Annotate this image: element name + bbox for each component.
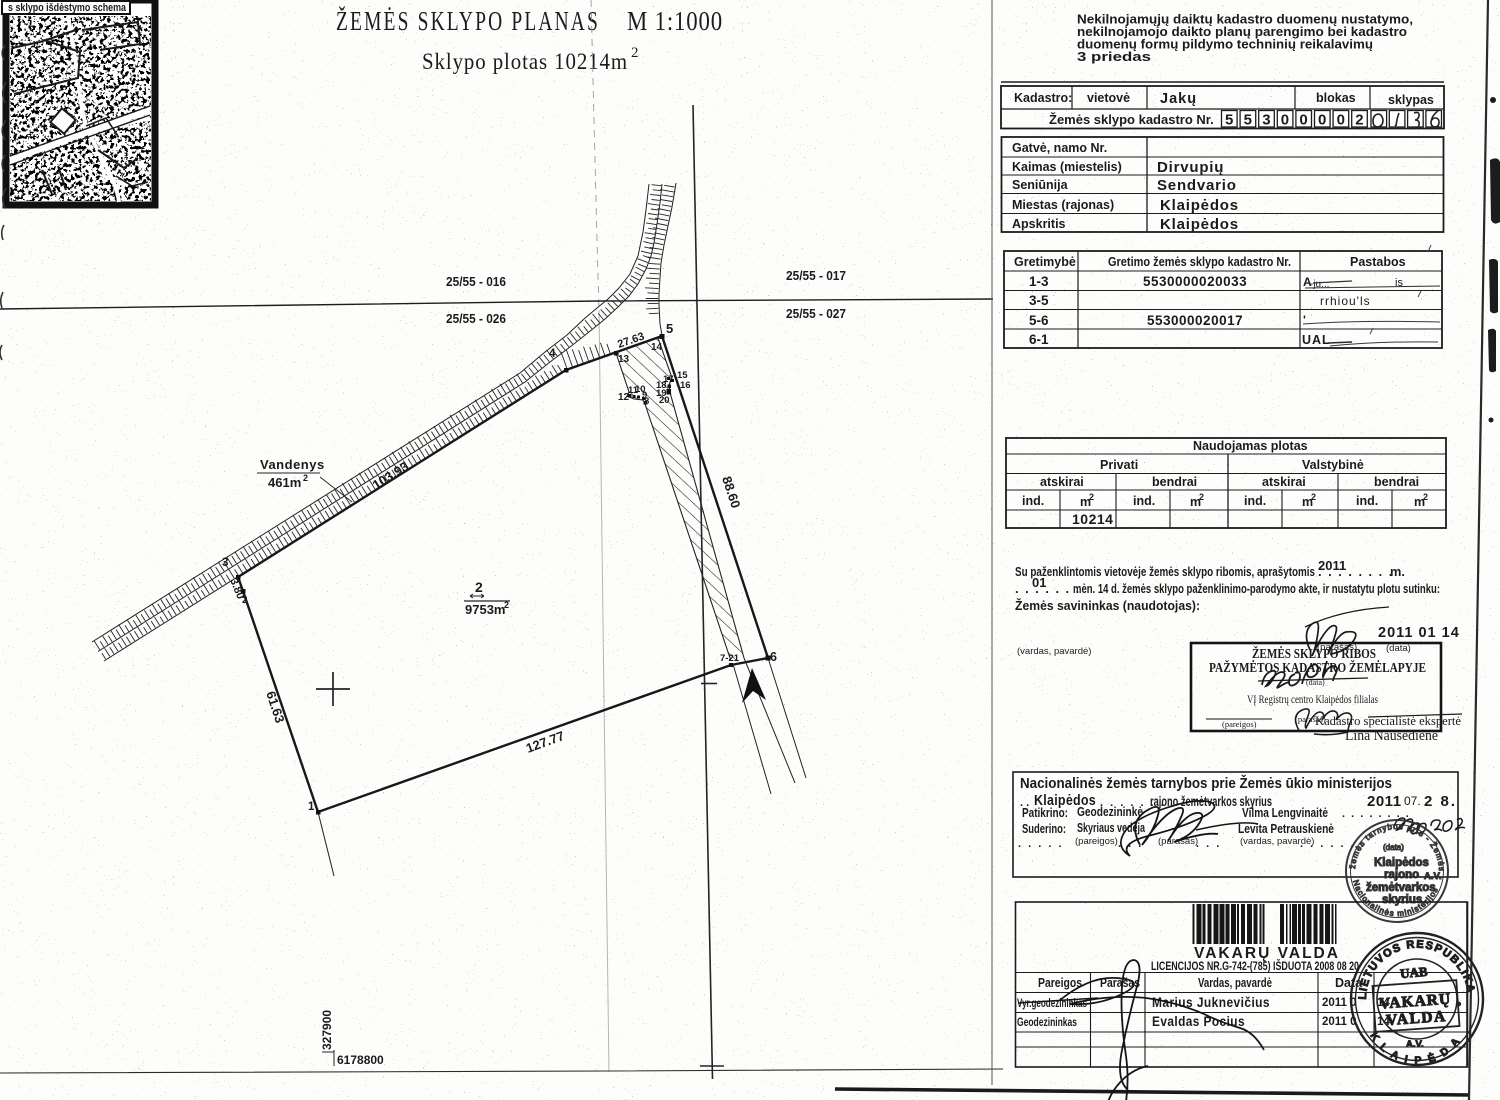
svg-text:UAB: UAB bbox=[1399, 964, 1428, 981]
svg-text:(vardas, pavardė): (vardas, pavardė) bbox=[1017, 646, 1091, 657]
svg-text:Pastabos: Pastabos bbox=[1350, 255, 1406, 269]
svg-text:1: 1 bbox=[308, 801, 315, 813]
svg-text:VĮ Registrų centro Klaipėdos f: VĮ Registrų centro Klaipėdos filialas bbox=[1247, 694, 1378, 706]
svg-text:skyrius: skyrius bbox=[1382, 894, 1422, 906]
svg-text:A.V.: A.V. bbox=[1406, 1039, 1424, 1050]
svg-text:2: 2 bbox=[504, 600, 509, 610]
svg-text:atskirai: atskirai bbox=[1262, 475, 1306, 489]
svg-text:ŽEMĖS SKLYPO RIBOS: ŽEMĖS SKLYPO RIBOS bbox=[1252, 646, 1376, 661]
svg-text:Patikrino:: Patikrino: bbox=[1022, 805, 1068, 820]
svg-text:Apskritis: Apskritis bbox=[1012, 217, 1066, 231]
svg-text:6-1: 6-1 bbox=[1029, 332, 1049, 347]
svg-text:6: 6 bbox=[770, 650, 777, 664]
svg-text:2: 2 bbox=[1423, 492, 1428, 502]
svg-text:Gatvė, namo Nr.: Gatvė, namo Nr. bbox=[1012, 141, 1107, 155]
svg-text:Privati: Privati bbox=[1100, 458, 1138, 472]
svg-text:461m: 461m bbox=[268, 475, 301, 490]
svg-text:ŽEMĖS SKLYPO PLANAS: ŽEMĖS SKLYPO PLANAS bbox=[336, 6, 600, 36]
svg-text:A.V.: A.V. bbox=[1424, 871, 1442, 882]
svg-text:(pareigos): (pareigos) bbox=[1222, 719, 1257, 729]
svg-text:Suderino:: Suderino: bbox=[1022, 821, 1066, 836]
svg-text:5: 5 bbox=[666, 321, 673, 336]
svg-text:(data): (data) bbox=[1386, 643, 1411, 654]
svg-text:Kadastro:: Kadastro: bbox=[1014, 91, 1072, 105]
svg-text:01: 01 bbox=[1032, 575, 1046, 590]
svg-text:0: 0 bbox=[1318, 112, 1326, 129]
svg-text:(pareigos): (pareigos) bbox=[1075, 836, 1118, 847]
svg-text:(vardas, pavardė): (vardas, pavardė) bbox=[1240, 836, 1314, 847]
svg-text:Geodezininkas: Geodezininkas bbox=[1017, 1017, 1077, 1029]
svg-text:2: 2 bbox=[1089, 492, 1094, 502]
svg-text:7-21: 7-21 bbox=[720, 653, 740, 664]
svg-text:Gretimybė: Gretimybė bbox=[1014, 255, 1076, 269]
svg-text:3 priedas: 3 priedas bbox=[1077, 49, 1151, 64]
svg-text:2 8.: 2 8. bbox=[1424, 793, 1457, 810]
svg-text:5: 5 bbox=[1225, 112, 1233, 129]
svg-text:LICENCIJOS NR.G-742-(785) IŠ: LICENCIJOS NR.G-742-(785) IŠDUOTA 2008 0… bbox=[1151, 960, 1359, 973]
svg-text:2: 2 bbox=[475, 579, 483, 595]
svg-text:. . . . . . .: . . . . . . . bbox=[1015, 581, 1081, 596]
svg-text:2011: 2011 bbox=[1318, 558, 1346, 573]
svg-text:': ' bbox=[1303, 313, 1306, 327]
svg-text:5-6: 5-6 bbox=[1029, 313, 1049, 328]
svg-text:25/55 - 027: 25/55 - 027 bbox=[786, 306, 846, 321]
svg-text:25/55 - 016: 25/55 - 016 bbox=[446, 274, 506, 289]
svg-text:Jakų: Jakų bbox=[1160, 91, 1197, 107]
svg-text:Klaipėdos: Klaipėdos bbox=[1160, 197, 1239, 214]
svg-text:ind.: ind. bbox=[1356, 494, 1378, 508]
svg-text:UAL: UAL bbox=[1302, 333, 1331, 347]
svg-text:553000020017: 553000020017 bbox=[1147, 313, 1243, 328]
svg-text:6178800: 6178800 bbox=[337, 1053, 384, 1067]
svg-text:Seniūnija: Seniūnija bbox=[1012, 178, 1069, 192]
svg-text:0: 0 bbox=[1337, 112, 1345, 129]
svg-text:13: 13 bbox=[618, 354, 630, 365]
svg-text:m.: m. bbox=[1390, 564, 1405, 579]
svg-text:Naudojamas plotas: Naudojamas plotas bbox=[1193, 439, 1308, 453]
svg-text:20: 20 bbox=[659, 395, 670, 406]
svg-text:sklypas: sklypas bbox=[1388, 93, 1434, 107]
svg-text:Klaipėdos: Klaipėdos bbox=[1160, 216, 1239, 233]
svg-text:327900: 327900 bbox=[320, 1010, 334, 1050]
svg-text:bendrai: bendrai bbox=[1152, 475, 1197, 489]
svg-text:14: 14 bbox=[651, 342, 663, 353]
svg-text:2: 2 bbox=[242, 595, 248, 606]
svg-text:Vandenys: Vandenys bbox=[260, 457, 325, 472]
svg-text:2011 01 14: 2011 01 14 bbox=[1378, 625, 1460, 641]
svg-text:ind.: ind. bbox=[1022, 494, 1044, 508]
svg-text:1-3: 1-3 bbox=[1029, 274, 1049, 289]
svg-text:0: 0 bbox=[1299, 112, 1307, 129]
svg-text:Pareigos: Pareigos bbox=[1038, 976, 1082, 990]
svg-text:ind.: ind. bbox=[1133, 494, 1155, 508]
svg-text:rrhiou'ls: rrhiou'ls bbox=[1320, 294, 1371, 308]
svg-text:4: 4 bbox=[549, 348, 556, 360]
svg-text:2: 2 bbox=[1355, 112, 1363, 129]
svg-text:25/55 - 017: 25/55 - 017 bbox=[786, 268, 846, 283]
svg-text:3: 3 bbox=[1262, 112, 1270, 129]
svg-text:Klaipėdos: Klaipėdos bbox=[1374, 857, 1429, 869]
svg-text:8: 8 bbox=[644, 396, 649, 407]
svg-text:blokas: blokas bbox=[1316, 91, 1356, 105]
svg-text:Sendvario: Sendvario bbox=[1157, 177, 1237, 194]
svg-text:5530000020033: 5530000020033 bbox=[1143, 274, 1247, 289]
svg-text:2: 2 bbox=[1199, 492, 1204, 502]
svg-text:M 1:1000: M 1:1000 bbox=[627, 6, 723, 36]
svg-text:Geodezininkė: Geodezininkė bbox=[1077, 804, 1143, 819]
svg-text:. . . . .: . . . . . bbox=[1018, 838, 1064, 850]
svg-text:0: 0 bbox=[1281, 112, 1289, 129]
svg-text:9753m: 9753m bbox=[465, 602, 505, 617]
svg-text:s sklypo išdėstymo schema: s sklypo išdėstymo schema bbox=[8, 2, 127, 14]
svg-text:2: 2 bbox=[303, 473, 308, 483]
svg-text:Žemės savininkas (naudotojas):: Žemės savininkas (naudotojas): bbox=[1015, 598, 1200, 613]
svg-text:vietovė: vietovė bbox=[1087, 91, 1130, 105]
svg-text:Vardas, pavardė: Vardas, pavardė bbox=[1198, 976, 1272, 990]
svg-text:2: 2 bbox=[631, 45, 639, 61]
svg-text:Nacionalinės žemės tarnybos pr: Nacionalinės žemės tarnybos prie Žemės ū… bbox=[1020, 774, 1392, 792]
svg-text:5: 5 bbox=[1244, 112, 1252, 129]
svg-text:07.: 07. bbox=[1404, 794, 1421, 808]
svg-text:Su paženklintomis vietovėje že: Su paženklintomis vietovėje žemės sklypo… bbox=[1015, 564, 1315, 579]
svg-text:Gretimo žemės sklypo kadastro: Gretimo žemės sklypo kadastro Nr. bbox=[1108, 255, 1291, 269]
svg-text:Vilma Lengvinaitė: Vilma Lengvinaitė bbox=[1242, 805, 1328, 820]
svg-text:mėn. 14 d. žemės sklypo paženk: mėn. 14 d. žemės sklypo paženklinimo-par… bbox=[1073, 581, 1440, 596]
svg-text:. . .: . . . bbox=[1196, 838, 1221, 850]
svg-text:16: 16 bbox=[680, 380, 691, 391]
svg-text:Kaimas (miestelis): Kaimas (miestelis) bbox=[1012, 160, 1122, 174]
svg-text:bendrai: bendrai bbox=[1374, 475, 1419, 489]
svg-text:10214: 10214 bbox=[1072, 511, 1113, 527]
svg-text:Lina Nausėdienė: Lina Nausėdienė bbox=[1345, 728, 1438, 744]
svg-text:Sklypo plotas 10214m: Sklypo plotas 10214m bbox=[422, 49, 628, 74]
svg-text:25/55 - 026: 25/55 - 026 bbox=[446, 311, 506, 326]
svg-text:rajono: rajono bbox=[1384, 869, 1419, 881]
svg-text:ind.: ind. bbox=[1244, 494, 1266, 508]
svg-text:3-5: 3-5 bbox=[1029, 293, 1049, 308]
svg-text:Miestas (rajonas): Miestas (rajonas) bbox=[1012, 198, 1114, 212]
svg-text:(data): (data) bbox=[1383, 843, 1404, 852]
svg-text:Žemės sklypo kadastro Nr.: Žemės sklypo kadastro Nr. bbox=[1049, 112, 1214, 127]
svg-text:VAKARŲ VALDA: VAKARŲ VALDA bbox=[1194, 945, 1340, 962]
svg-text:Dirvupių: Dirvupių bbox=[1157, 159, 1224, 176]
svg-text:3: 3 bbox=[222, 557, 228, 569]
svg-text:Valstybinė: Valstybinė bbox=[1302, 458, 1364, 472]
svg-text:atskirai: atskirai bbox=[1040, 475, 1084, 489]
svg-text:žemėtvarkos: žemėtvarkos bbox=[1366, 882, 1436, 894]
svg-text:Evaldas Pocius: Evaldas Pocius bbox=[1152, 1013, 1245, 1029]
svg-text:2: 2 bbox=[1311, 492, 1316, 502]
svg-text:2011 0: 2011 0 bbox=[1322, 1016, 1357, 1028]
svg-text:Kadastro specialistė ekspertė: Kadastro specialistė ekspertė bbox=[1315, 713, 1461, 728]
svg-text:is: is bbox=[1395, 277, 1403, 289]
